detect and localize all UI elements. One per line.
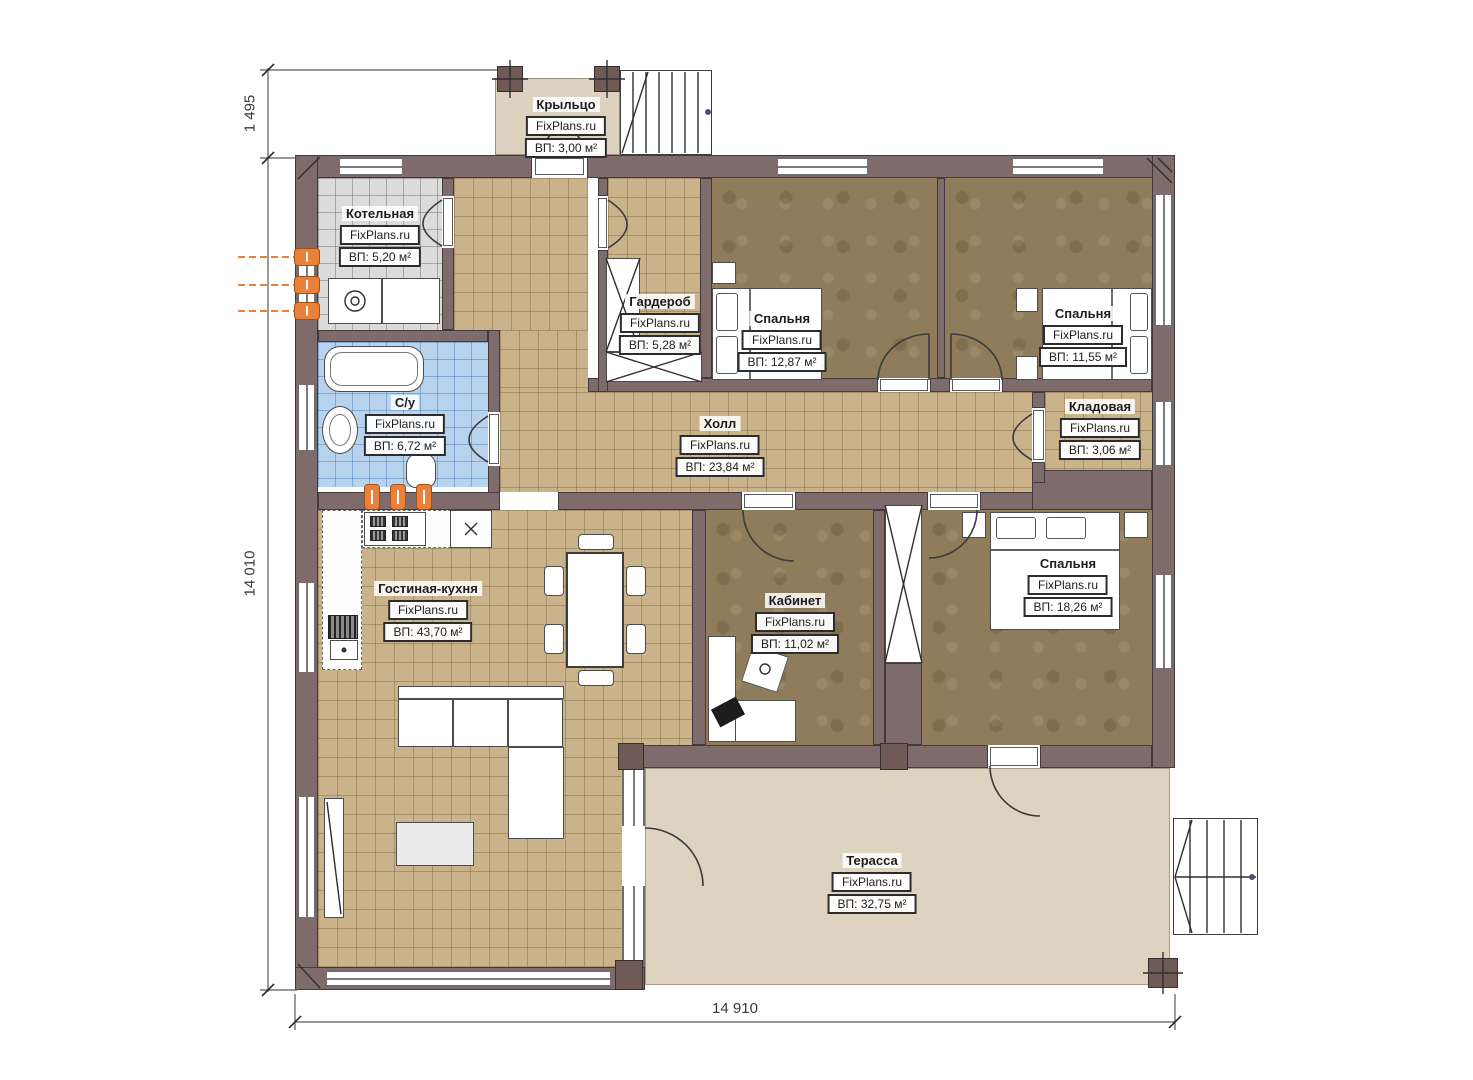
radiator	[294, 276, 320, 294]
window	[297, 797, 316, 917]
room-site-box: FixPlans.ru	[365, 414, 445, 434]
terrace-door-opening	[622, 826, 645, 886]
wall	[937, 178, 945, 378]
bathroom-sink	[322, 406, 358, 454]
fridge	[450, 510, 492, 548]
pillow	[1130, 336, 1148, 374]
wall	[1032, 462, 1045, 483]
room-name: Гардероб	[625, 294, 694, 309]
wall	[318, 330, 488, 342]
stove-burner	[370, 516, 386, 527]
room-area-box: ВП: 11,02 м²	[751, 634, 839, 654]
pillow	[716, 293, 738, 331]
room-site-box: FixPlans.ru	[832, 872, 912, 892]
wall	[1032, 392, 1045, 408]
window	[1154, 195, 1173, 325]
pillow	[1046, 517, 1086, 539]
room-site-box: FixPlans.ru	[340, 225, 420, 245]
nightstand	[1124, 512, 1148, 538]
room-name: Котельная	[342, 206, 418, 221]
heating-manifold	[416, 484, 432, 510]
door-leaf	[880, 379, 928, 391]
passage-opening	[500, 492, 558, 510]
coffee-table	[396, 822, 474, 866]
room-label-boiler: Котельная FixPlans.ru ВП: 5,20 м²	[339, 205, 421, 267]
nightstand	[1016, 288, 1038, 312]
room-label-bathroom: С/у FixPlans.ru ВП: 6,72 м²	[364, 394, 446, 456]
heating-manifold	[364, 484, 380, 510]
room-name: Крыльцо	[532, 97, 599, 112]
window	[778, 157, 867, 176]
room-area-box: ВП: 43,70 м²	[384, 622, 473, 642]
hall-floor	[500, 392, 1032, 492]
room-label-office: Кабинет FixPlans.ru ВП: 11,02 м²	[751, 592, 839, 654]
wall	[873, 510, 885, 745]
door-leaf	[744, 494, 793, 508]
kitchen-sink	[330, 640, 358, 660]
entry-stairs	[620, 70, 712, 155]
room-area-box: ВП: 12,87 м²	[738, 352, 827, 372]
door-leaf	[489, 414, 499, 464]
sofa-seat	[453, 699, 508, 747]
room-area-box: ВП: 18,26 м²	[1024, 597, 1113, 617]
room-label-storage: Кладовая FixPlans.ru ВП: 3,06 м²	[1059, 398, 1141, 460]
dining-chair	[544, 624, 564, 654]
room-site-box: FixPlans.ru	[388, 600, 468, 620]
room-label-bedroom-1: Спальня FixPlans.ru ВП: 12,87 м²	[738, 310, 827, 372]
pillow	[1130, 293, 1148, 331]
room-area-box: ВП: 5,28 м²	[619, 335, 701, 355]
window-sliding-door	[327, 970, 610, 987]
terrace-column	[880, 743, 908, 770]
sofa-seat	[398, 699, 453, 747]
door-leaf	[535, 158, 584, 175]
stove-burner	[370, 530, 386, 541]
room-area-box: ВП: 32,75 м²	[828, 894, 917, 914]
wall	[318, 492, 500, 510]
terrace-column	[1148, 958, 1178, 988]
ventilation-shaft	[885, 505, 922, 663]
room-area-box: ВП: 11,55 м²	[1039, 347, 1127, 367]
terrace-partition-window	[622, 886, 645, 967]
washing-machine	[328, 278, 382, 324]
room-name: С/у	[391, 395, 419, 410]
door-leaf	[952, 379, 1000, 391]
room-name: Спальня	[1051, 306, 1115, 321]
window	[297, 385, 316, 450]
room-name: Терасса	[842, 853, 902, 868]
wardrobe-cabinet	[606, 352, 702, 382]
sofa-back	[398, 686, 564, 699]
tv-panel	[324, 798, 344, 918]
room-name: Кладовая	[1065, 399, 1135, 414]
radiator	[294, 248, 320, 266]
room-site-box: FixPlans.ru	[1043, 325, 1123, 345]
bathtub-inner	[330, 352, 418, 386]
window	[1154, 575, 1173, 668]
window	[297, 583, 316, 672]
dimension-top-left: 1 495	[242, 86, 259, 142]
door-leaf	[598, 198, 607, 248]
room-area-box: ВП: 3,00 м²	[525, 138, 607, 158]
room-label-porch: Крыльцо FixPlans.ru ВП: 3,00 м²	[525, 96, 607, 158]
wall	[930, 378, 950, 392]
room-site-box: FixPlans.ru	[742, 330, 822, 350]
wall	[1040, 745, 1152, 768]
wall	[643, 745, 988, 768]
door-leaf	[990, 747, 1038, 766]
room-name: Спальня	[750, 311, 814, 326]
dining-table	[566, 552, 624, 668]
dimension-left: 14 010	[242, 540, 259, 608]
room-name: Гостиная-кухня	[374, 581, 482, 596]
dining-chair	[544, 566, 564, 596]
nightstand	[1016, 356, 1038, 380]
sofa-seat	[508, 699, 563, 747]
terrace-stairs	[1173, 818, 1258, 935]
sink-bowl	[329, 414, 351, 446]
porch-column	[497, 66, 523, 92]
room-area-box: ВП: 6,72 м²	[364, 436, 446, 456]
room-label-wardrobe: Гардероб FixPlans.ru ВП: 5,28 м²	[619, 293, 701, 355]
window	[1154, 402, 1173, 465]
porch-column	[594, 66, 620, 92]
room-label-hall: Холл FixPlans.ru ВП: 23,84 м²	[676, 415, 765, 477]
hall-corridor-floor	[454, 178, 588, 330]
window	[1013, 157, 1103, 176]
wall	[1002, 378, 1152, 392]
door-leaf	[443, 198, 453, 246]
wall	[295, 155, 532, 178]
room-site-box: FixPlans.ru	[755, 612, 835, 632]
door-leaf	[1033, 410, 1044, 460]
wall	[692, 510, 706, 745]
terrace-column	[618, 743, 644, 770]
room-label-bedroom-2: Спальня FixPlans.ru ВП: 11,55 м²	[1039, 305, 1127, 367]
wall	[558, 492, 742, 510]
terrace-column	[615, 960, 643, 990]
nightstand	[962, 512, 986, 538]
room-area-box: ВП: 3,06 м²	[1059, 440, 1141, 460]
kitchen-hood	[328, 615, 358, 639]
room-site-box: FixPlans.ru	[1060, 418, 1140, 438]
room-site-box: FixPlans.ru	[680, 435, 760, 455]
heating-manifold	[390, 484, 406, 510]
pillow	[996, 517, 1036, 539]
door-leaf	[930, 494, 978, 508]
room-site-box: FixPlans.ru	[620, 313, 700, 333]
nightstand	[712, 262, 736, 284]
room-name: Кабинет	[765, 593, 826, 608]
room-name: Холл	[700, 416, 741, 431]
floor-plan-canvas: 1 495 14 010 14 910 Крыльцо FixPlans.ru …	[0, 0, 1473, 1080]
dimension-bottom: 14 910	[685, 1000, 785, 1017]
room-site-box: FixPlans.ru	[1028, 575, 1108, 595]
room-label-bedroom-3: Спальня FixPlans.ru ВП: 18,26 м²	[1024, 555, 1113, 617]
terrace-partition-window	[622, 768, 645, 826]
hall-corridor-floor	[500, 330, 588, 392]
stove-burner	[392, 530, 408, 541]
room-area-box: ВП: 23,84 м²	[676, 457, 765, 477]
bathtub	[324, 346, 424, 392]
sofa-chaise	[508, 747, 564, 839]
boiler-counter	[382, 278, 440, 324]
room-site-box: FixPlans.ru	[526, 116, 606, 136]
wall	[1032, 470, 1152, 510]
radiator	[294, 302, 320, 320]
window	[340, 157, 402, 176]
dining-chair	[626, 624, 646, 654]
dining-chair	[578, 534, 614, 550]
dining-chair	[578, 670, 614, 686]
toilet	[406, 452, 436, 488]
stove-burner	[392, 516, 408, 527]
room-label-living-kitchen: Гостиная-кухня FixPlans.ru ВП: 43,70 м²	[374, 580, 482, 642]
room-area-box: ВП: 5,20 м²	[339, 247, 421, 267]
wall	[885, 663, 922, 745]
wall	[598, 178, 608, 196]
room-label-terrace: Терасса FixPlans.ru ВП: 32,75 м²	[828, 852, 917, 914]
dining-chair	[626, 566, 646, 596]
room-name: Спальня	[1036, 556, 1100, 571]
wall	[700, 178, 712, 378]
pillow	[716, 336, 738, 374]
